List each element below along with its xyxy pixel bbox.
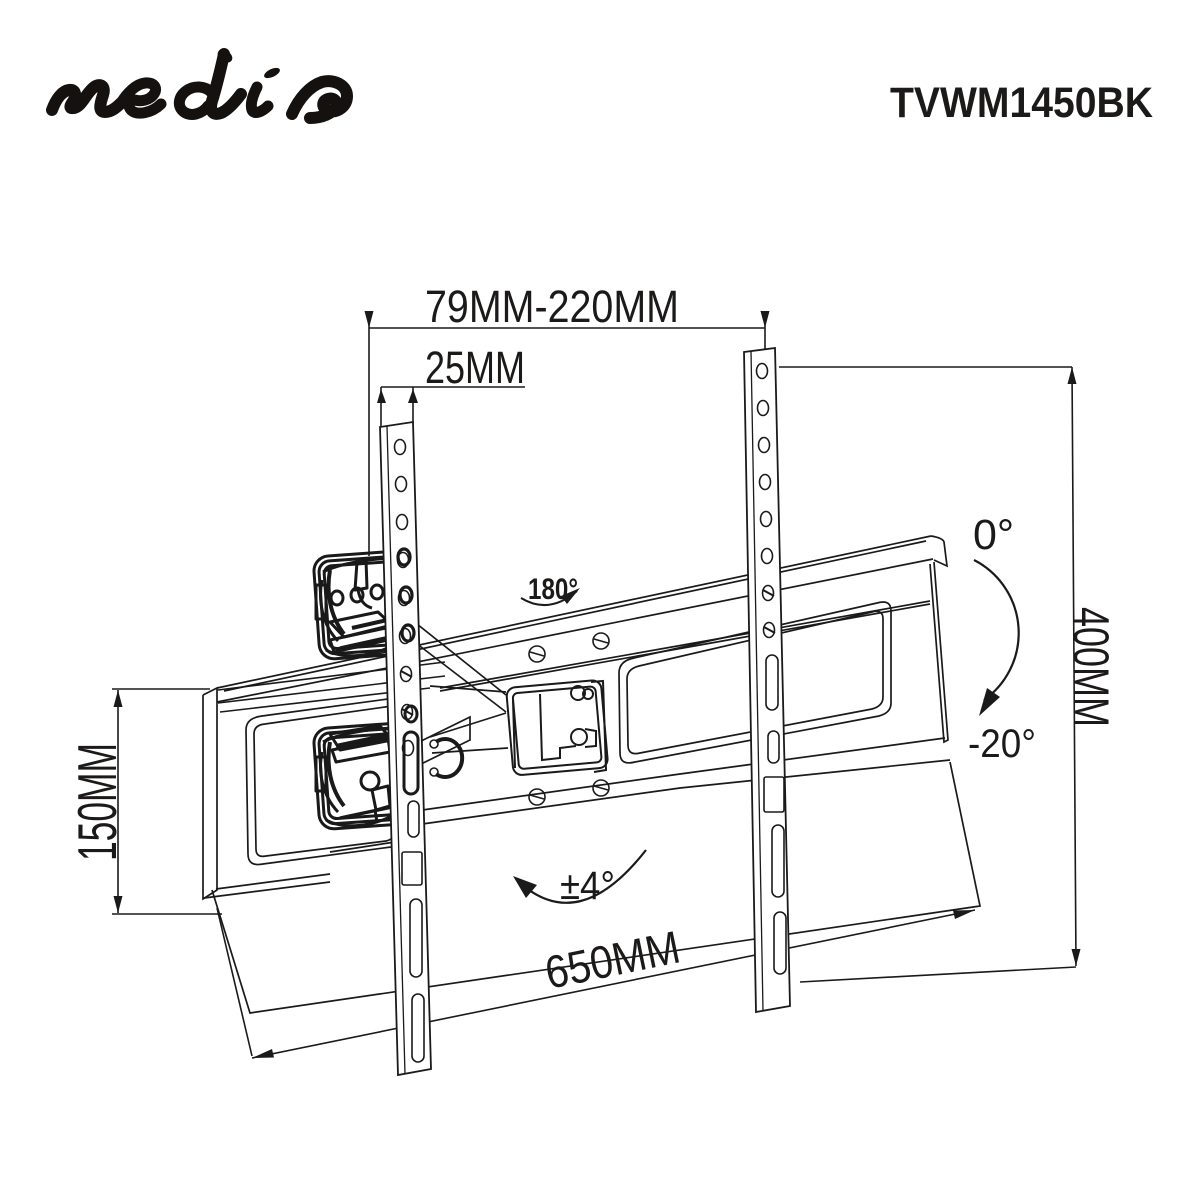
svg-text:400MM: 400MM [1063, 607, 1119, 727]
svg-text:25MM: 25MM [425, 342, 525, 393]
svg-text:180°: 180° [528, 573, 578, 606]
svg-text:0°: 0° [973, 511, 1014, 559]
svg-text:TVWM1450BK: TVWM1450BK [890, 79, 1153, 127]
svg-text:79MM-220MM: 79MM-220MM [425, 281, 679, 332]
svg-text:-20°: -20° [968, 722, 1036, 766]
svg-text:±4°: ±4° [560, 864, 615, 908]
